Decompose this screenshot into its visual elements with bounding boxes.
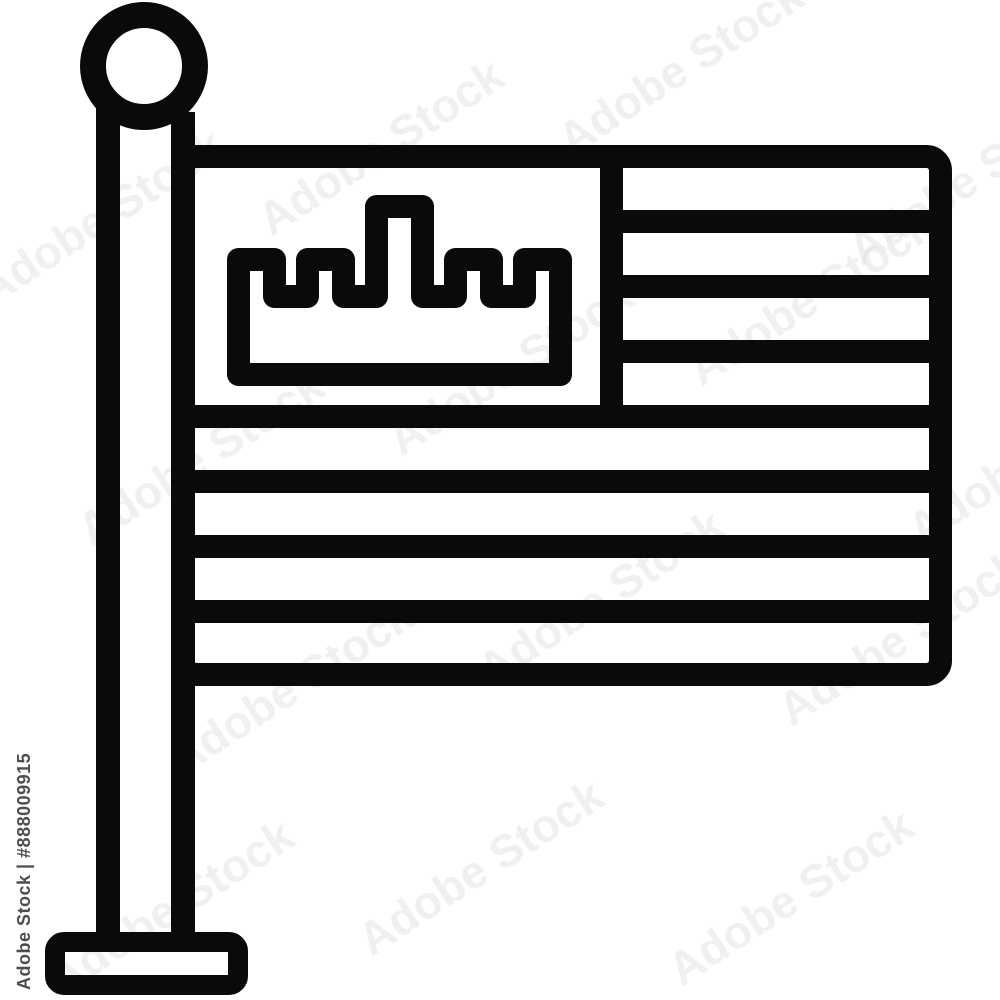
stripe-full-2 [180,470,940,493]
pole-finial-circle [93,15,195,117]
stripe-full-3 [180,535,940,558]
stripe-full-4 [180,600,940,623]
stripe-right-1 [611,210,941,233]
canton-crown-castle [239,207,561,375]
watermark-id-text: Adobe Stock | #888009915 [14,752,35,990]
pole-base [55,942,238,985]
stock-image-canvas: Adobe StockAdobe StockAdobe StockAdobe S… [0,0,1000,1000]
stripe-right-3 [611,340,941,363]
stripe-full-1 [180,405,940,428]
stripe-right-2 [611,275,941,298]
pole-left-bar [96,108,120,932]
flag-icon [0,0,1000,1000]
